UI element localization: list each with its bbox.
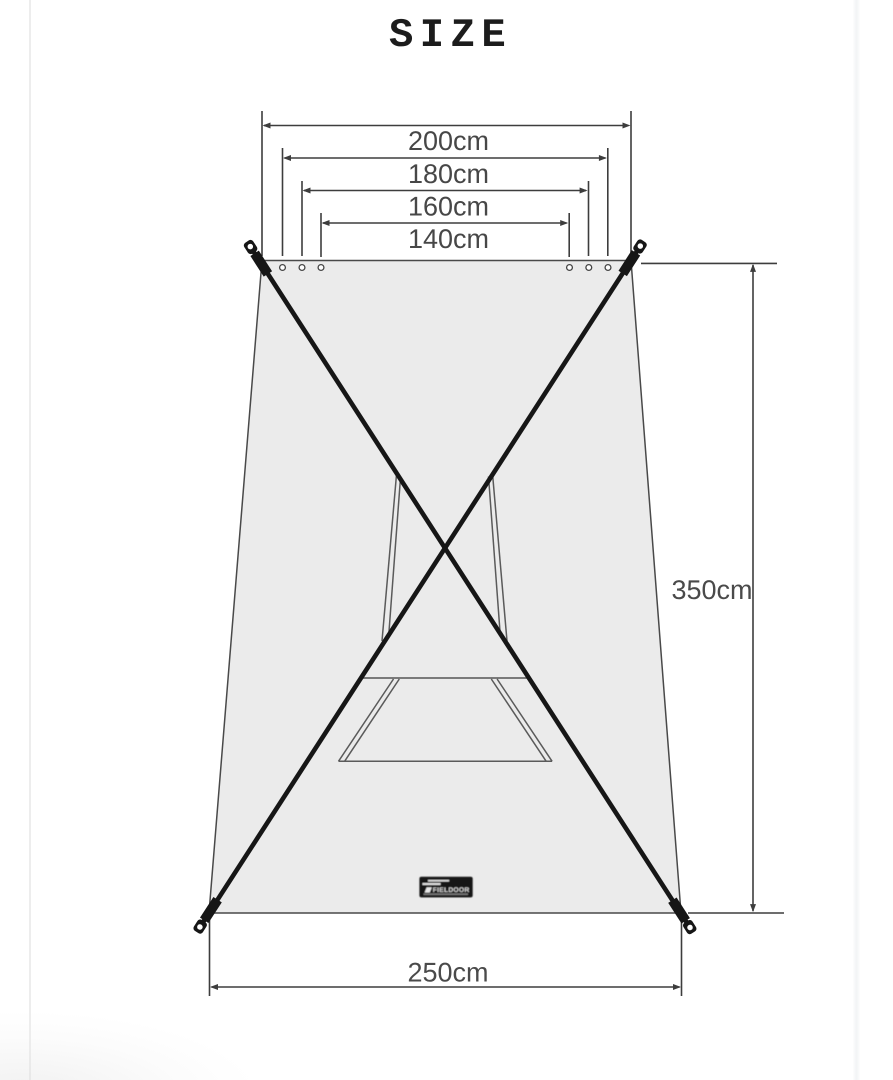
- svg-text:140cm: 140cm: [408, 224, 489, 254]
- svg-text:180cm: 180cm: [408, 159, 489, 189]
- svg-text:350cm: 350cm: [671, 575, 752, 605]
- svg-text:SIZE: SIZE: [389, 13, 512, 59]
- svg-text:160cm: 160cm: [408, 192, 489, 222]
- svg-text:250cm: 250cm: [407, 958, 488, 988]
- svg-text:200cm: 200cm: [408, 126, 489, 156]
- svg-text:FIELDOOR: FIELDOOR: [433, 886, 470, 894]
